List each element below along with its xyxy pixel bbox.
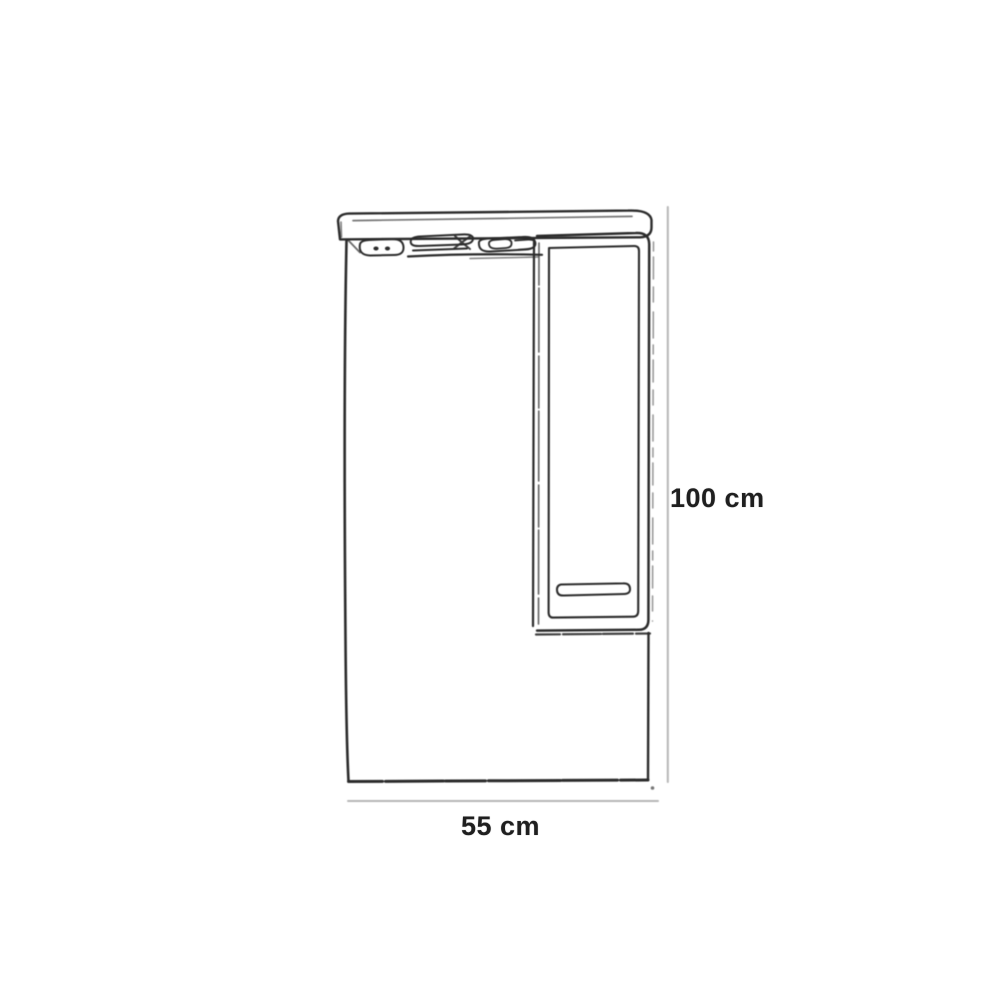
bulb-dot [385, 247, 390, 251]
width-dimension-label: 55 cm [461, 811, 540, 842]
light-bulb-right-inner [489, 239, 512, 249]
mirror-left-edge [345, 241, 349, 781]
sketch-lines [338, 211, 654, 790]
bulb-dot [373, 247, 378, 251]
light-strip-bar [413, 249, 467, 251]
cabinet-outer-right-sketch [653, 242, 654, 621]
unit-bottom-edge [349, 780, 649, 782]
scan-dot [651, 786, 655, 790]
cabinet-door-outline [549, 246, 639, 618]
light-strip-end [515, 240, 536, 250]
dimension-lines [348, 207, 668, 801]
corner-scratch [348, 240, 361, 253]
cabinet-box [537, 233, 649, 631]
light-strip-underline [408, 254, 542, 256]
side-cabinet-outline [536, 233, 654, 635]
cabinet-under-line [536, 634, 650, 635]
door-handle [557, 583, 630, 595]
mirror-panel-outline [345, 241, 655, 790]
light-strip-underline-double [470, 257, 538, 259]
light-bulb-left [360, 239, 404, 256]
unit-lower-right-edge [648, 633, 649, 780]
drawing-canvas: 100 cm 55 cm [0, 0, 1000, 1000]
furniture-technical-drawing [0, 0, 1000, 1000]
height-dimension-label: 100 cm [670, 483, 765, 514]
mirror-cabinet-divider [533, 240, 539, 626]
